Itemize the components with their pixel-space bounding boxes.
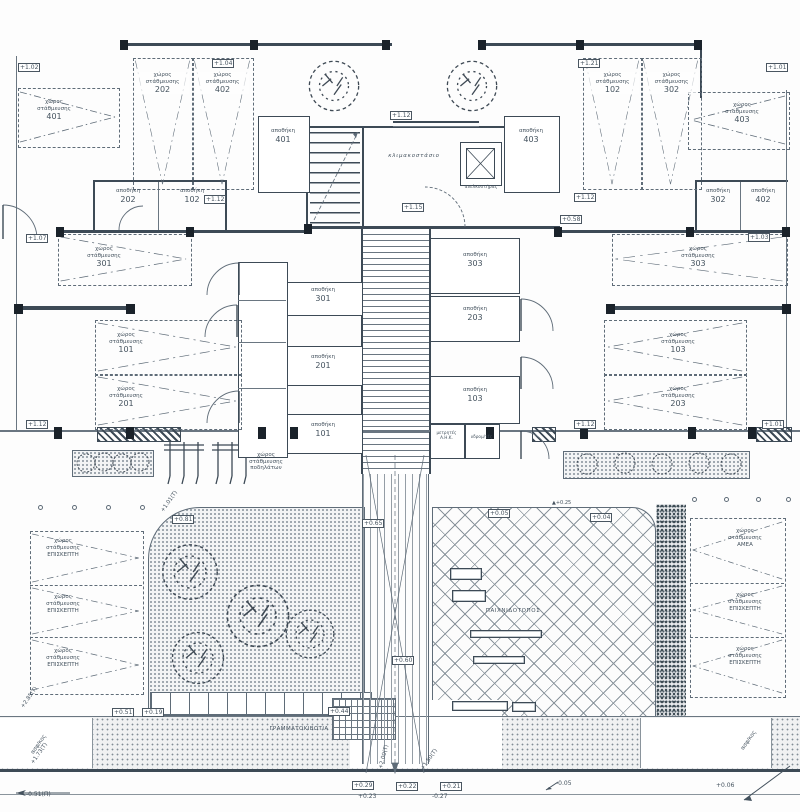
column [694,40,702,50]
parking-label-201: χώροςστάθμευσης201 [100,386,152,408]
parking-label-202: χώροςστάθμευσης202 [136,72,189,94]
column [688,427,696,439]
wall [238,388,286,389]
mailboxes-label: ΓΡΑΜΜΑΤΟΚΙΒΩΤΙΑ [262,726,336,732]
elevation-marker: +0.65 [362,519,384,528]
elevation-marker: +1.15 [402,203,424,212]
play-equipment [450,568,482,580]
lot-boundary-left [16,56,17,430]
door-arc-icon [118,205,144,231]
bollard [724,497,729,502]
wall [238,342,286,343]
parking-label-103: χώροςστάθμευσης103 [652,332,704,354]
elevation-marker: +0.19 [142,708,164,717]
storage-label-303: αποθήκη303 [452,252,498,268]
disabled-parking-label: χώροςστάθμευσηςΑΜΕΑ [718,528,772,550]
elevation-marker: +1.04 [212,59,234,68]
playground-area [432,507,656,721]
storage-label-401: αποθήκη401 [262,128,304,144]
elevation-marker: +1.21 [578,59,600,68]
parking-label-301: χώροςστάθμευσης301 [78,246,130,268]
column [478,40,486,50]
column [14,304,23,314]
storage-label-403: αποθήκη403 [508,128,554,144]
door-arc-icon [206,262,240,296]
column [126,304,135,314]
column [576,40,584,50]
column [56,227,64,237]
visitor-parking-label: χώροςστάθμευσηςΕΠΙΣΚΕΠΤΗ [718,646,772,668]
parking-label-403: χώροςστάθμευσης403 [716,102,768,124]
spot-level: +0.23 [358,793,376,800]
wall [238,300,286,301]
elevator-label: ανελκυστήρας [459,185,503,190]
elevation-marker: +1.01 [762,420,784,429]
core-wall [362,126,364,228]
wall [695,180,788,182]
elevation-marker: +1.01 [766,63,788,72]
elevation-marker: +0.29 [352,781,374,790]
door-arc-icon [520,356,554,390]
tree-icon [443,57,501,115]
elevator-icon [466,148,495,179]
elevation-marker: +0.22 [396,782,418,791]
shrub-icons-left [74,449,152,477]
bollard [786,497,791,502]
visitor-parking-label: χώροςστάθμευσηςΕΠΙΣΚΕΠΤΗ [718,592,772,614]
parking-label-303: χώροςστάθμευσης303 [672,246,724,268]
column [554,227,562,237]
elevation-marker: +1.02 [18,63,40,72]
meters-label: μετρητέςΑ.Η.Κ. [430,430,463,440]
car-ramp-upper [361,228,431,474]
bollard [692,497,697,502]
tree-icon [305,57,363,115]
driveway-apron-right [640,718,772,768]
door-arc-icon [206,390,240,424]
elevation-marker: +1.03 [748,233,770,242]
meter-room-water [465,424,500,459]
level-arrow-icon [736,762,794,806]
bench [470,630,542,638]
column [382,40,390,50]
parking-label-401: χώροςστάθμευσης401 [28,99,80,121]
door-arc-icon [424,186,466,228]
column [186,227,194,237]
column [54,427,62,439]
door-arc-icon [204,304,238,338]
elevation-marker: +0.58 [560,215,582,224]
storage-label-101: αποθήκη101 [300,422,346,438]
wall [58,230,308,233]
door-arc-icon [520,430,550,460]
elevation-marker: +0.21 [440,782,462,791]
hedge-strip [656,504,686,720]
wall [93,180,95,232]
elevation-marker: +0.81 [172,515,194,524]
elevation-marker: +1.12 [390,111,412,120]
elevation-marker: +0.44 [328,707,350,716]
column [782,304,791,314]
canopy-line [393,121,479,123]
parking-label-302: χώροςστάθμευσης302 [645,72,698,94]
wall [479,43,702,46]
elevation-marker: +1.07 [26,234,48,243]
bollard [106,505,111,510]
elevation-marker: +1.12 [574,420,596,429]
wall [608,306,788,310]
column [782,227,790,237]
wall [740,182,741,232]
parking-label-402: χώροςστάθμευσης402 [196,72,249,94]
spot-level: -0.27 [432,793,448,800]
storage-label-402: αποθήκη402 [742,188,784,204]
parking-label-102: χώροςστάθμευσης102 [586,72,639,94]
bollard [756,497,761,502]
bike-parking-label: χώροςστάθμευσηςποδηλάτων [238,452,294,472]
spot-level: +0.06 [716,782,734,789]
elevation-marker: +0.51 [112,708,134,717]
tree-icon [282,606,338,662]
visitor-parking-label: χώροςστάθμευσηςΕΠΙΣΚΕΠΤΗ [36,594,90,616]
bollard [140,505,145,510]
rotated-level-label: +1.01(Τ) [160,490,179,514]
storage-label-201: αποθήκη201 [300,354,346,370]
column [748,427,756,439]
spot-level: -0.51(Π) [26,791,51,798]
column [606,304,615,314]
stair-direction-icon [308,130,362,226]
floor-plan-canvas: χώροςστάθμευσηςποδηλάτων ΓΡΑΜΜΑΤΟΚΙΒΩΤΙΑ… [0,0,800,812]
visitor-parking-label: χώροςστάθμευσηςΕΠΙΣΚΕΠΤΗ [36,538,90,560]
canopy-line [393,126,479,127]
road-center-line [0,794,800,795]
play-equipment [452,590,486,602]
bench [452,701,508,711]
parking-label-101: χώροςστάθμευσης101 [100,332,152,354]
tree-icon [168,628,228,688]
column [126,427,134,439]
stairwell-label: κλιμακοστάσιο [372,153,456,159]
column [290,427,298,439]
storage-label-203: αποθήκη203 [452,306,498,322]
column [250,40,258,50]
column [686,227,694,237]
storage-label-302: αποθήκη302 [698,188,738,204]
door-arc-icon [520,298,554,332]
column [258,427,266,439]
ramp-slope-guides [360,455,430,775]
column [304,224,312,234]
visitor-parking-label: χώροςστάθμευσηςΕΠΙΣΚΕΠΤΗ [36,648,90,670]
level-triangle-icon: ▲+0.25 [552,500,571,506]
column [120,40,128,50]
playground-label: ΠΑΙΧΝΙΔΟΤΟΠΟΣ [468,608,558,614]
bench [512,702,536,712]
elevation-marker: +0.60 [392,656,414,665]
elevation-marker: +0.04 [590,513,612,522]
elevation-marker: +0.05 [488,509,510,518]
tree-icon [158,540,222,604]
bollard [72,505,77,510]
storage-label-103: αποθήκη103 [452,387,498,403]
bench [473,656,525,664]
parking-label-203: χώροςστάθμευσης203 [652,386,704,408]
elevation-marker: +1.12 [204,195,226,204]
storage-label-301: αποθήκη301 [300,287,346,303]
storage-label-202: αποθήκη202 [102,188,154,204]
hatched-wall [756,427,792,442]
elevation-marker: +1.12 [26,420,48,429]
wall [16,306,134,310]
shrub-icons-right [565,450,747,478]
elevation-marker: +1.12 [574,193,596,202]
bollard [38,505,43,510]
spot-level: -0.05 [556,780,572,787]
water-meters-label: υδρομ/τές [465,434,498,439]
